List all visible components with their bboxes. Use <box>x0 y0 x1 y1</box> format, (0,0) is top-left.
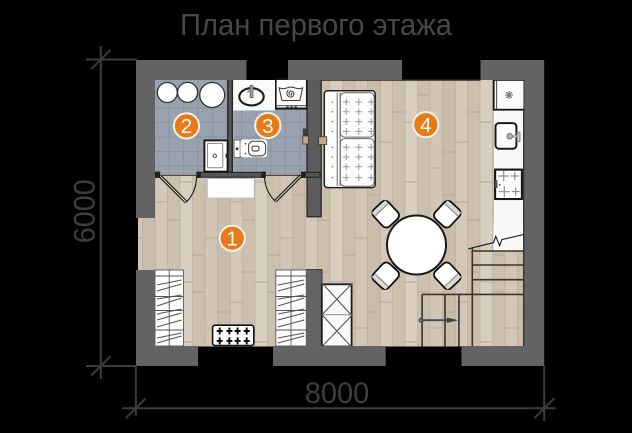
svg-text:8000: 8000 <box>305 378 370 410</box>
svg-text:3: 3 <box>262 115 273 138</box>
svg-text:План первого этажа: План первого этажа <box>180 7 453 42</box>
svg-text:1: 1 <box>226 228 237 251</box>
svg-text:6000: 6000 <box>70 179 102 243</box>
svg-text:4: 4 <box>420 114 431 137</box>
svg-text:2: 2 <box>181 115 192 138</box>
